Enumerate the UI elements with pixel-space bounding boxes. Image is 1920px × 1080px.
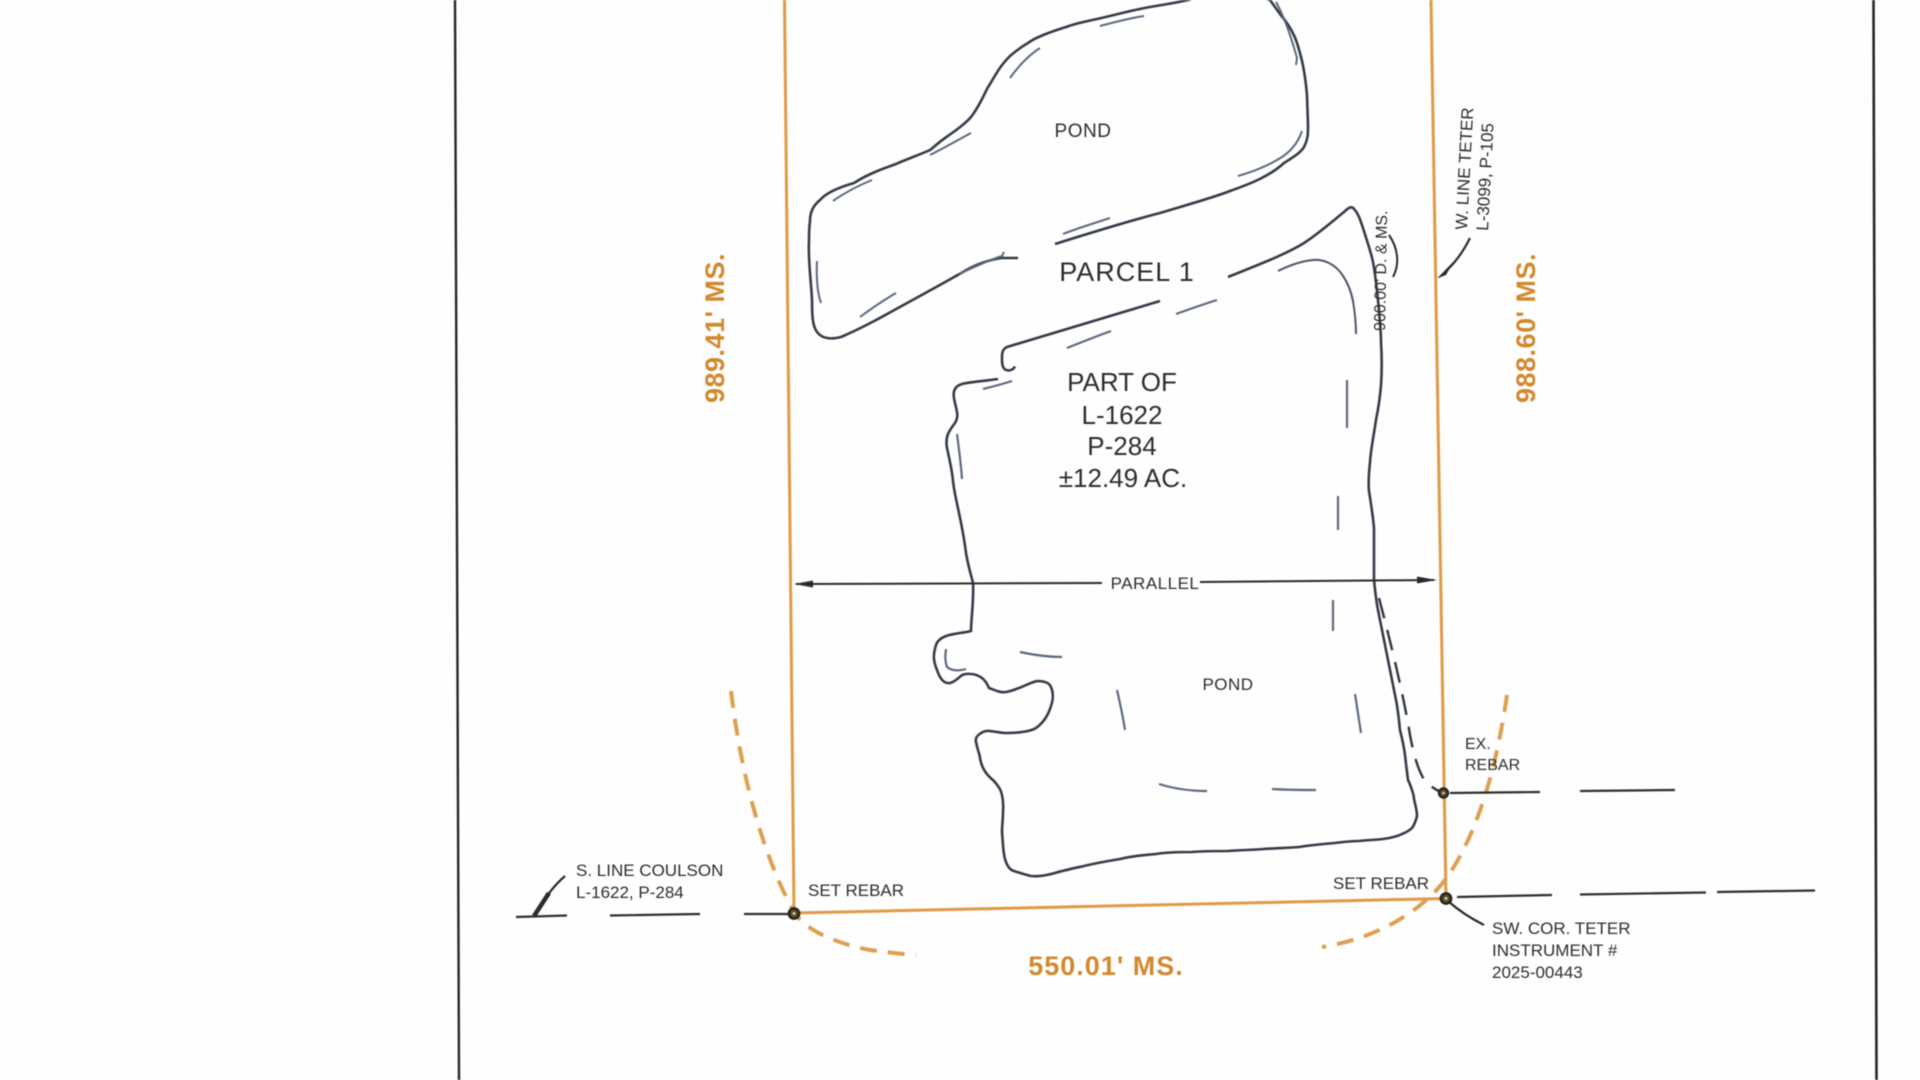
svg-text:PARCEL 1: PARCEL 1	[1059, 257, 1195, 287]
svg-text:S. LINE COULSON: S. LINE COULSON	[576, 861, 723, 880]
svg-text:PARALLEL: PARALLEL	[1111, 574, 1200, 593]
svg-text:900.00' D. & MS.: 900.00' D. & MS.	[1372, 210, 1391, 331]
svg-text:INSTRUMENT #: INSTRUMENT #	[1492, 941, 1618, 960]
svg-text:L-1622: L-1622	[1082, 400, 1163, 430]
svg-text:L-1622, P-284: L-1622, P-284	[576, 883, 684, 902]
svg-text:POND: POND	[1202, 675, 1253, 694]
svg-text:988.60' MS.: 988.60' MS.	[1511, 253, 1541, 403]
svg-text:SW. COR. TETER: SW. COR. TETER	[1492, 919, 1631, 938]
svg-text:PART OF: PART OF	[1067, 367, 1177, 397]
svg-text:550.01' MS.: 550.01' MS.	[1028, 951, 1184, 981]
svg-text:±12.49 AC.: ±12.49 AC.	[1059, 463, 1187, 493]
svg-text:SET REBAR: SET REBAR	[808, 881, 904, 900]
svg-text:P-284: P-284	[1087, 431, 1156, 461]
svg-text:SET REBAR: SET REBAR	[1333, 874, 1429, 893]
svg-text:POND: POND	[1055, 121, 1112, 142]
svg-text:989.41' MS.: 989.41' MS.	[700, 253, 730, 403]
svg-text:2025-00443: 2025-00443	[1492, 963, 1583, 982]
svg-text:REBAR: REBAR	[1465, 757, 1520, 774]
svg-text:EX.: EX.	[1465, 736, 1491, 753]
